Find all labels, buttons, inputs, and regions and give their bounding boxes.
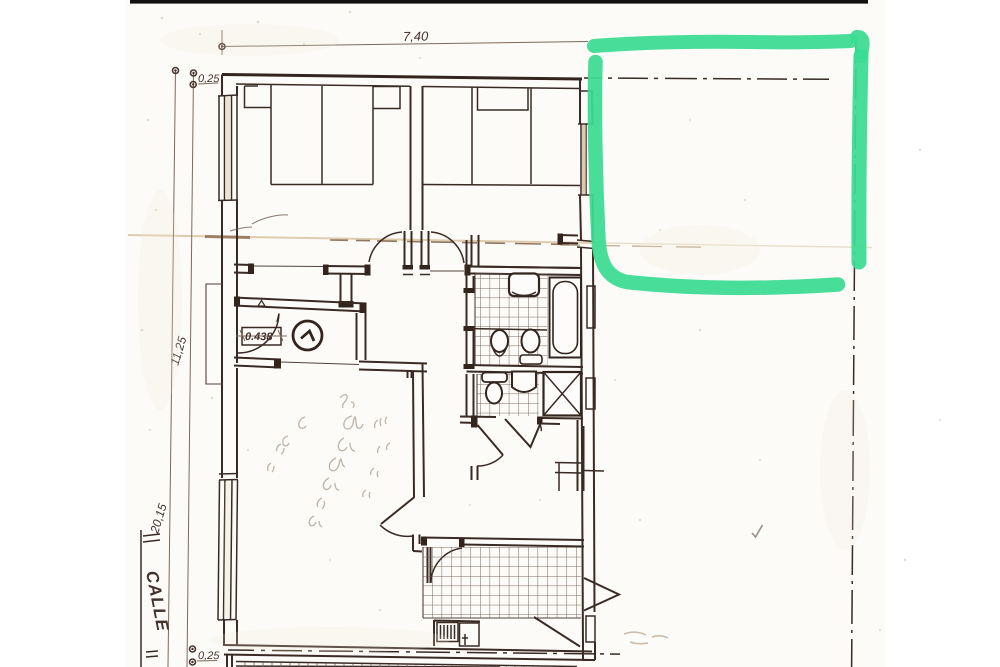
svg-text:7,40: 7,40: [403, 29, 429, 44]
svg-text:0.438: 0.438: [245, 331, 273, 343]
